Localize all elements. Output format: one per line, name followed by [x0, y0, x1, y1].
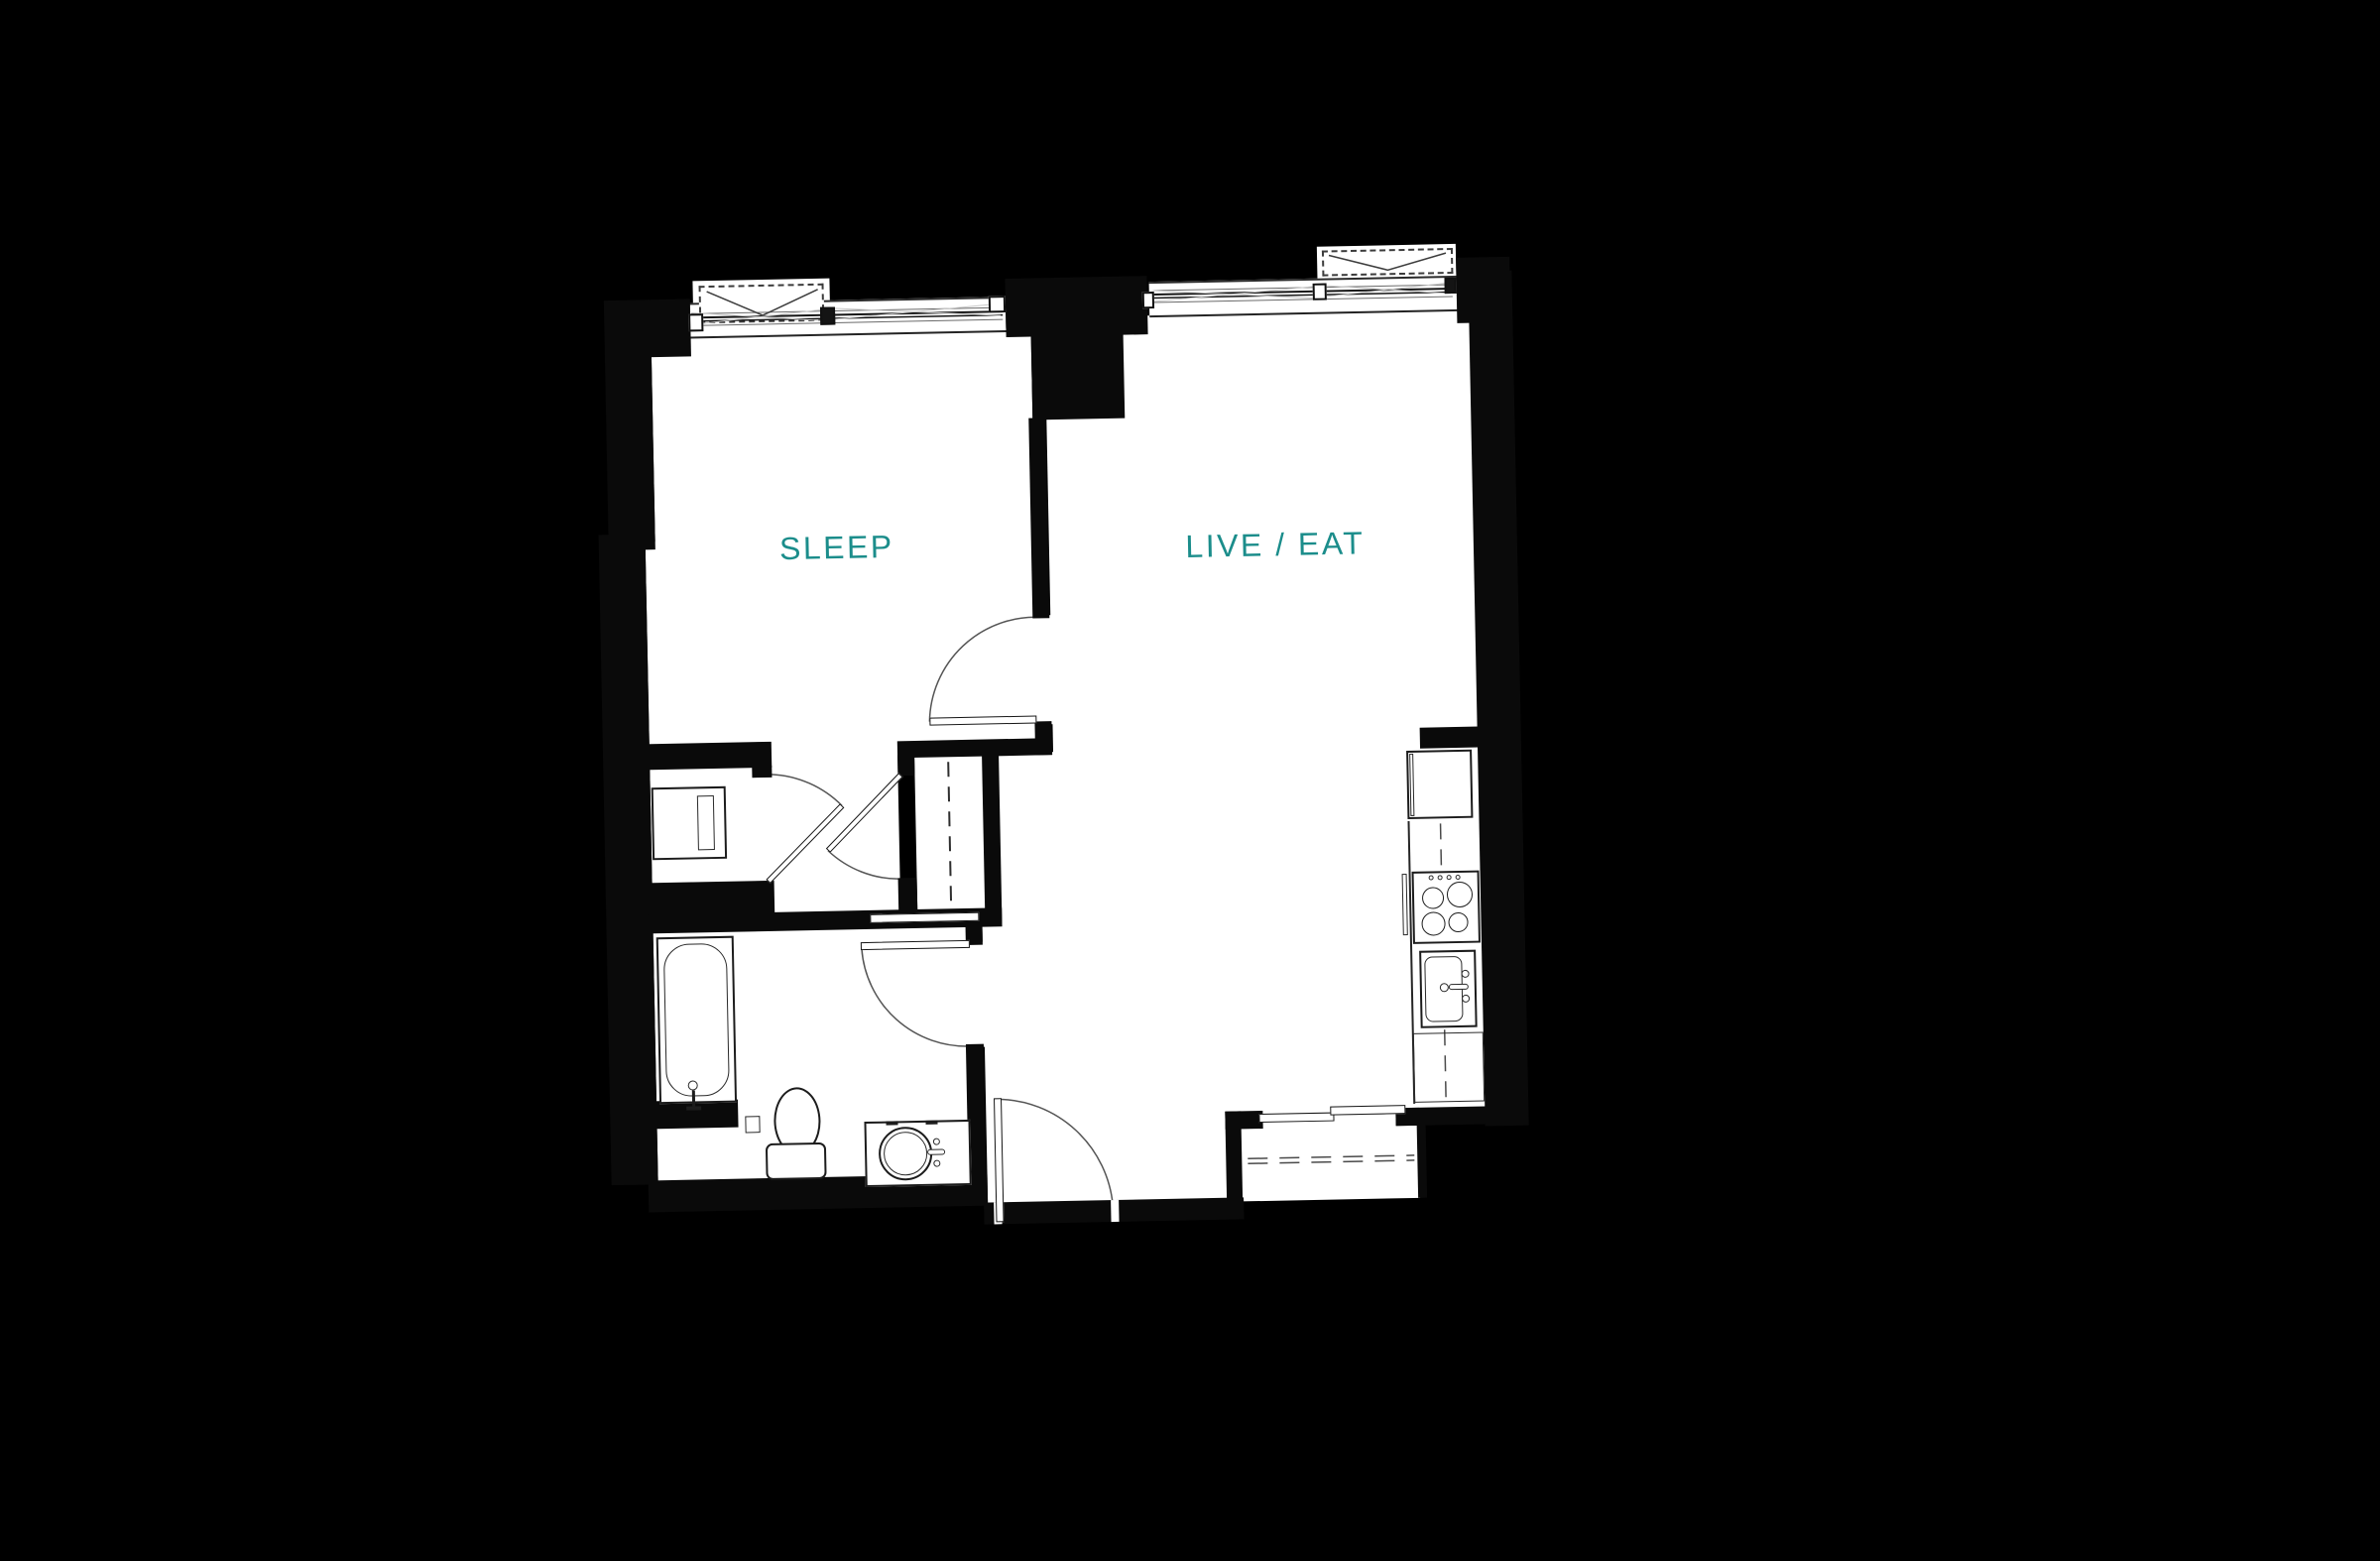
right-window-mid-mullion: [1313, 284, 1327, 300]
range-knob-4: [1456, 875, 1461, 880]
washer-dryer-detail: [697, 795, 715, 850]
right-window-pier-mullion: [1142, 292, 1154, 308]
wall-laundry-nook-bottom: [648, 881, 775, 917]
kitchen-sink-dot-bottom: [1462, 995, 1470, 1003]
right-window-end-mullion: [1445, 278, 1457, 294]
right-window: [1149, 276, 1460, 317]
wall-kitchen-bottom: [1395, 1106, 1498, 1126]
wall-coat-closet-top-left: [1225, 1111, 1262, 1130]
bedroom-closet-floor: [914, 754, 985, 913]
bathtub-basin: [663, 943, 730, 1097]
wall-closet-east: [982, 753, 1002, 925]
live-eat-room-label: LIVE / EAT: [1185, 525, 1366, 565]
wall-center-pier-block: [1031, 333, 1126, 420]
wall-closet-west-upper: [897, 755, 914, 776]
washer-dryer-unit: [652, 786, 727, 860]
toilet-tank: [766, 1142, 827, 1180]
kitchen-faucet-lever: [1449, 984, 1469, 990]
range-knob-3: [1447, 875, 1452, 880]
wall-closet-west-lower: [898, 878, 918, 911]
right-window-operable-marker: [1322, 248, 1453, 277]
left-window-mid-mullion: [820, 306, 835, 324]
entry-hall-floor: [979, 749, 1242, 1204]
range-knob-1: [1429, 875, 1434, 880]
left-window-operable-marker: [699, 284, 825, 324]
floorplan-drawing: SLEEP LIVE / EAT: [0, 0, 2380, 1561]
left-window-pier-mullion: [989, 296, 1006, 312]
range: [1412, 871, 1481, 944]
coat-closet-floor: [1240, 1114, 1420, 1202]
left-window-end-mullion: [688, 313, 703, 331]
wall-center-pier: [1005, 276, 1147, 337]
coat-closet-slider-1: [1258, 1113, 1334, 1124]
toilet-paper-holder: [745, 1116, 760, 1133]
wall-coat-closet-east: [1417, 1123, 1428, 1198]
divider-doorway-floor: [1028, 615, 1056, 724]
entry-threshold-slot-right: [1111, 1200, 1119, 1222]
coat-closet-slider-2: [1330, 1105, 1405, 1116]
vanity-tick-right: [925, 1121, 937, 1125]
vanity-faucet-lever: [927, 1148, 945, 1154]
wall-left-upper: [604, 300, 655, 550]
refrigerator: [1406, 750, 1473, 819]
wall-sleep-bottom: [897, 738, 1052, 758]
vanity-tick-left: [886, 1121, 897, 1125]
dishwasher: [1413, 1032, 1485, 1103]
vanity-faucet-dot-top: [933, 1139, 940, 1145]
wall-laundry-nook-top-stub: [752, 766, 772, 778]
range-knob-2: [1438, 875, 1443, 880]
sleep-room-label: SLEEP: [779, 529, 894, 567]
wall-top-right-corner: [1456, 257, 1510, 323]
floorplan-page: { "floorplan": { "rooms": { "sleep": { "…: [0, 0, 2380, 1540]
bathroom-doorway-floor: [962, 942, 988, 1047]
tub-faucet-base: [686, 1106, 701, 1110]
